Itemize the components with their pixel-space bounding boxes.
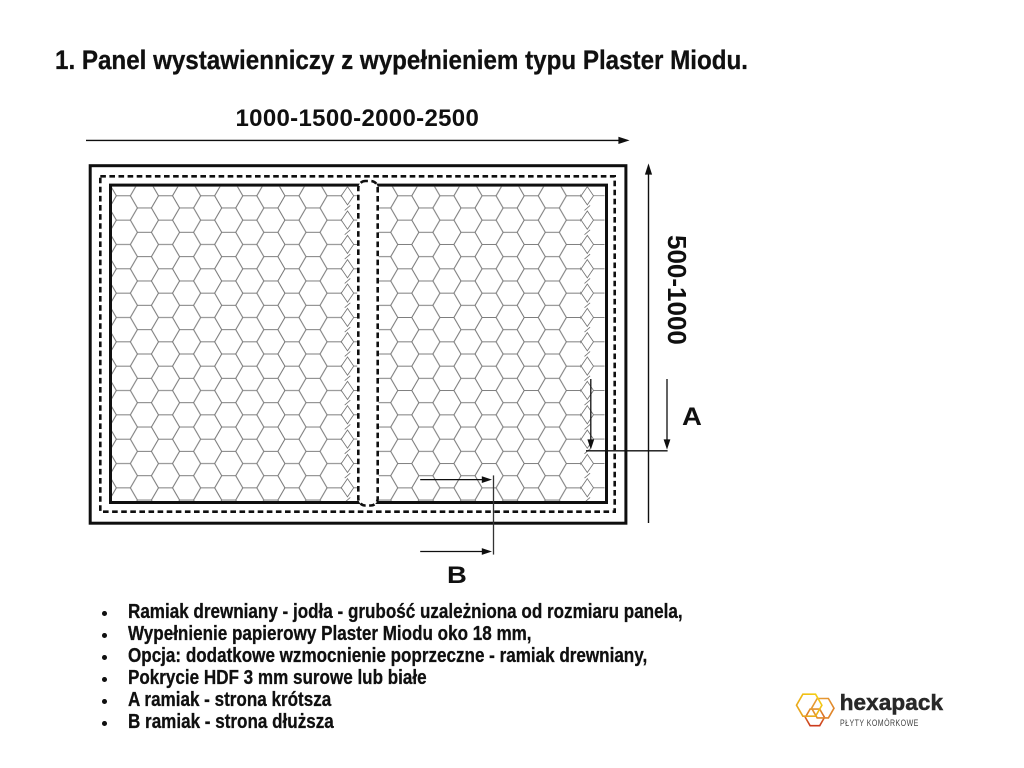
svg-text:500-1000: 500-1000 [662,235,692,345]
